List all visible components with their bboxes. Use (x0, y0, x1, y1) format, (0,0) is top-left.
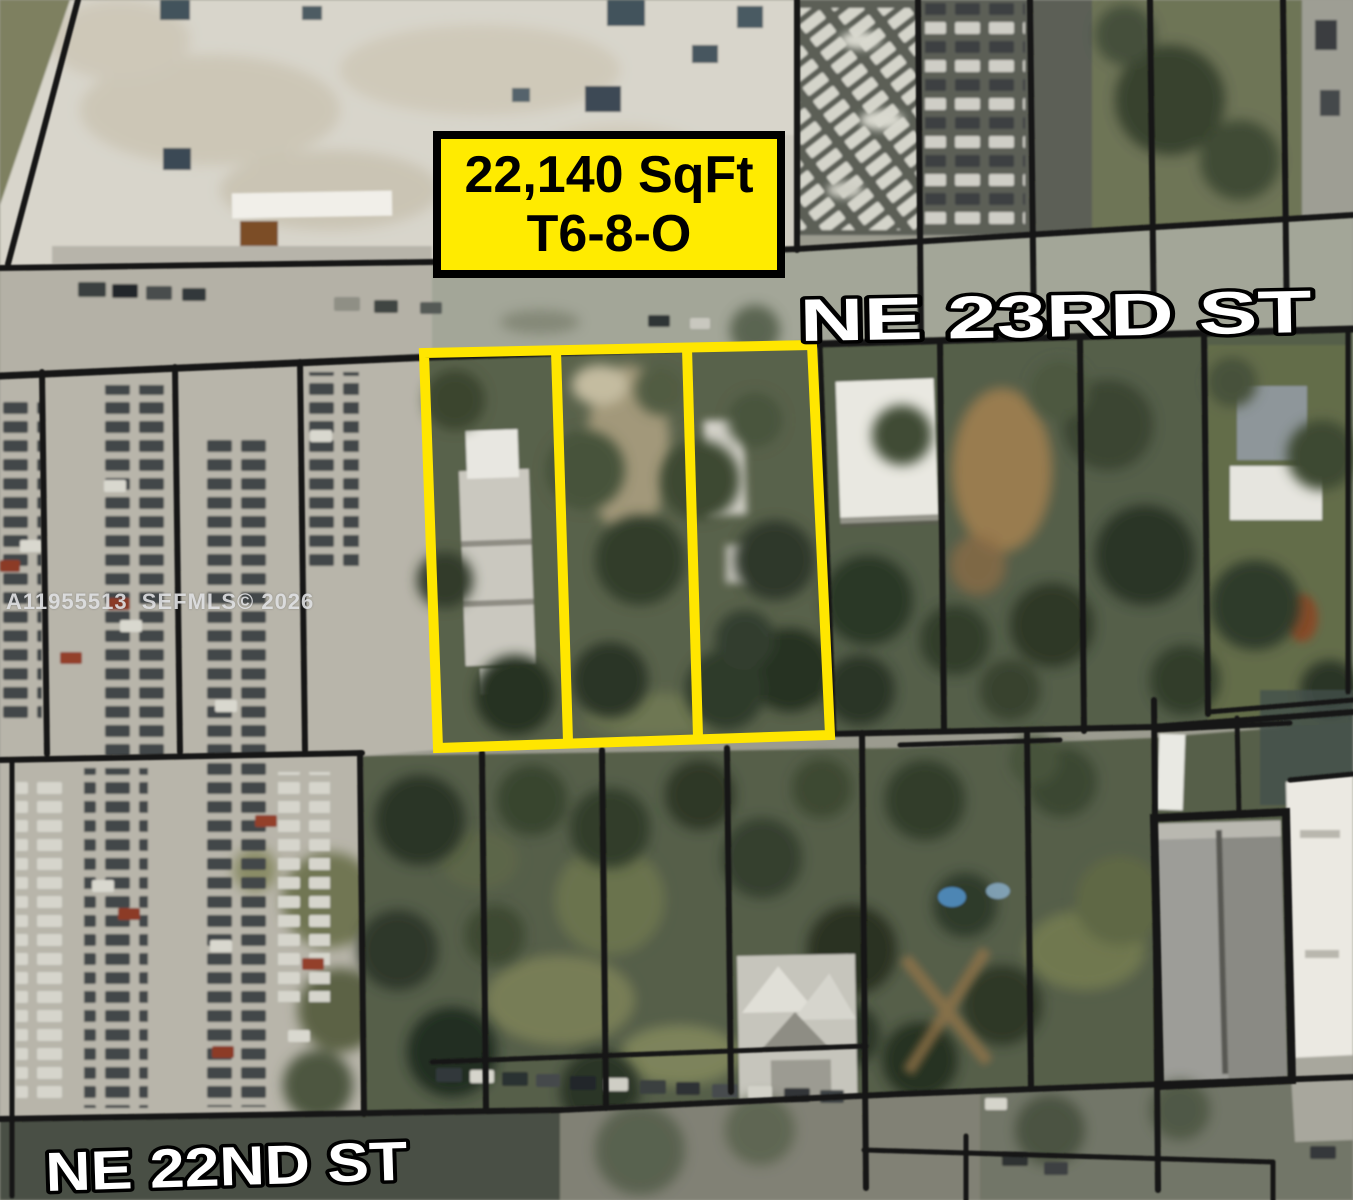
gray-roof-building (1157, 820, 1288, 1081)
loading-dock (232, 191, 392, 219)
mls-watermark: A11955513 SEFMLS© 2026 (6, 589, 314, 615)
pool (938, 887, 966, 907)
white-building (1286, 775, 1353, 1062)
listing-aerial-map: NE 23RD ST NE 22ND ST 22,140 SqFt T6-8-O… (0, 0, 1353, 1200)
house-roof (737, 954, 858, 1104)
street-label-ne-22nd: NE 22ND ST (44, 1130, 408, 1200)
white-truck (1157, 734, 1186, 811)
dirt-patch (952, 388, 1052, 552)
area-label-zoning: T6-8-O (527, 205, 692, 263)
street-label-ne-23rd: NE 23RD ST (799, 278, 1312, 354)
area-label-box: 22,140 SqFt T6-8-O (433, 131, 785, 278)
area-label-sqft: 22,140 SqFt (464, 146, 753, 204)
